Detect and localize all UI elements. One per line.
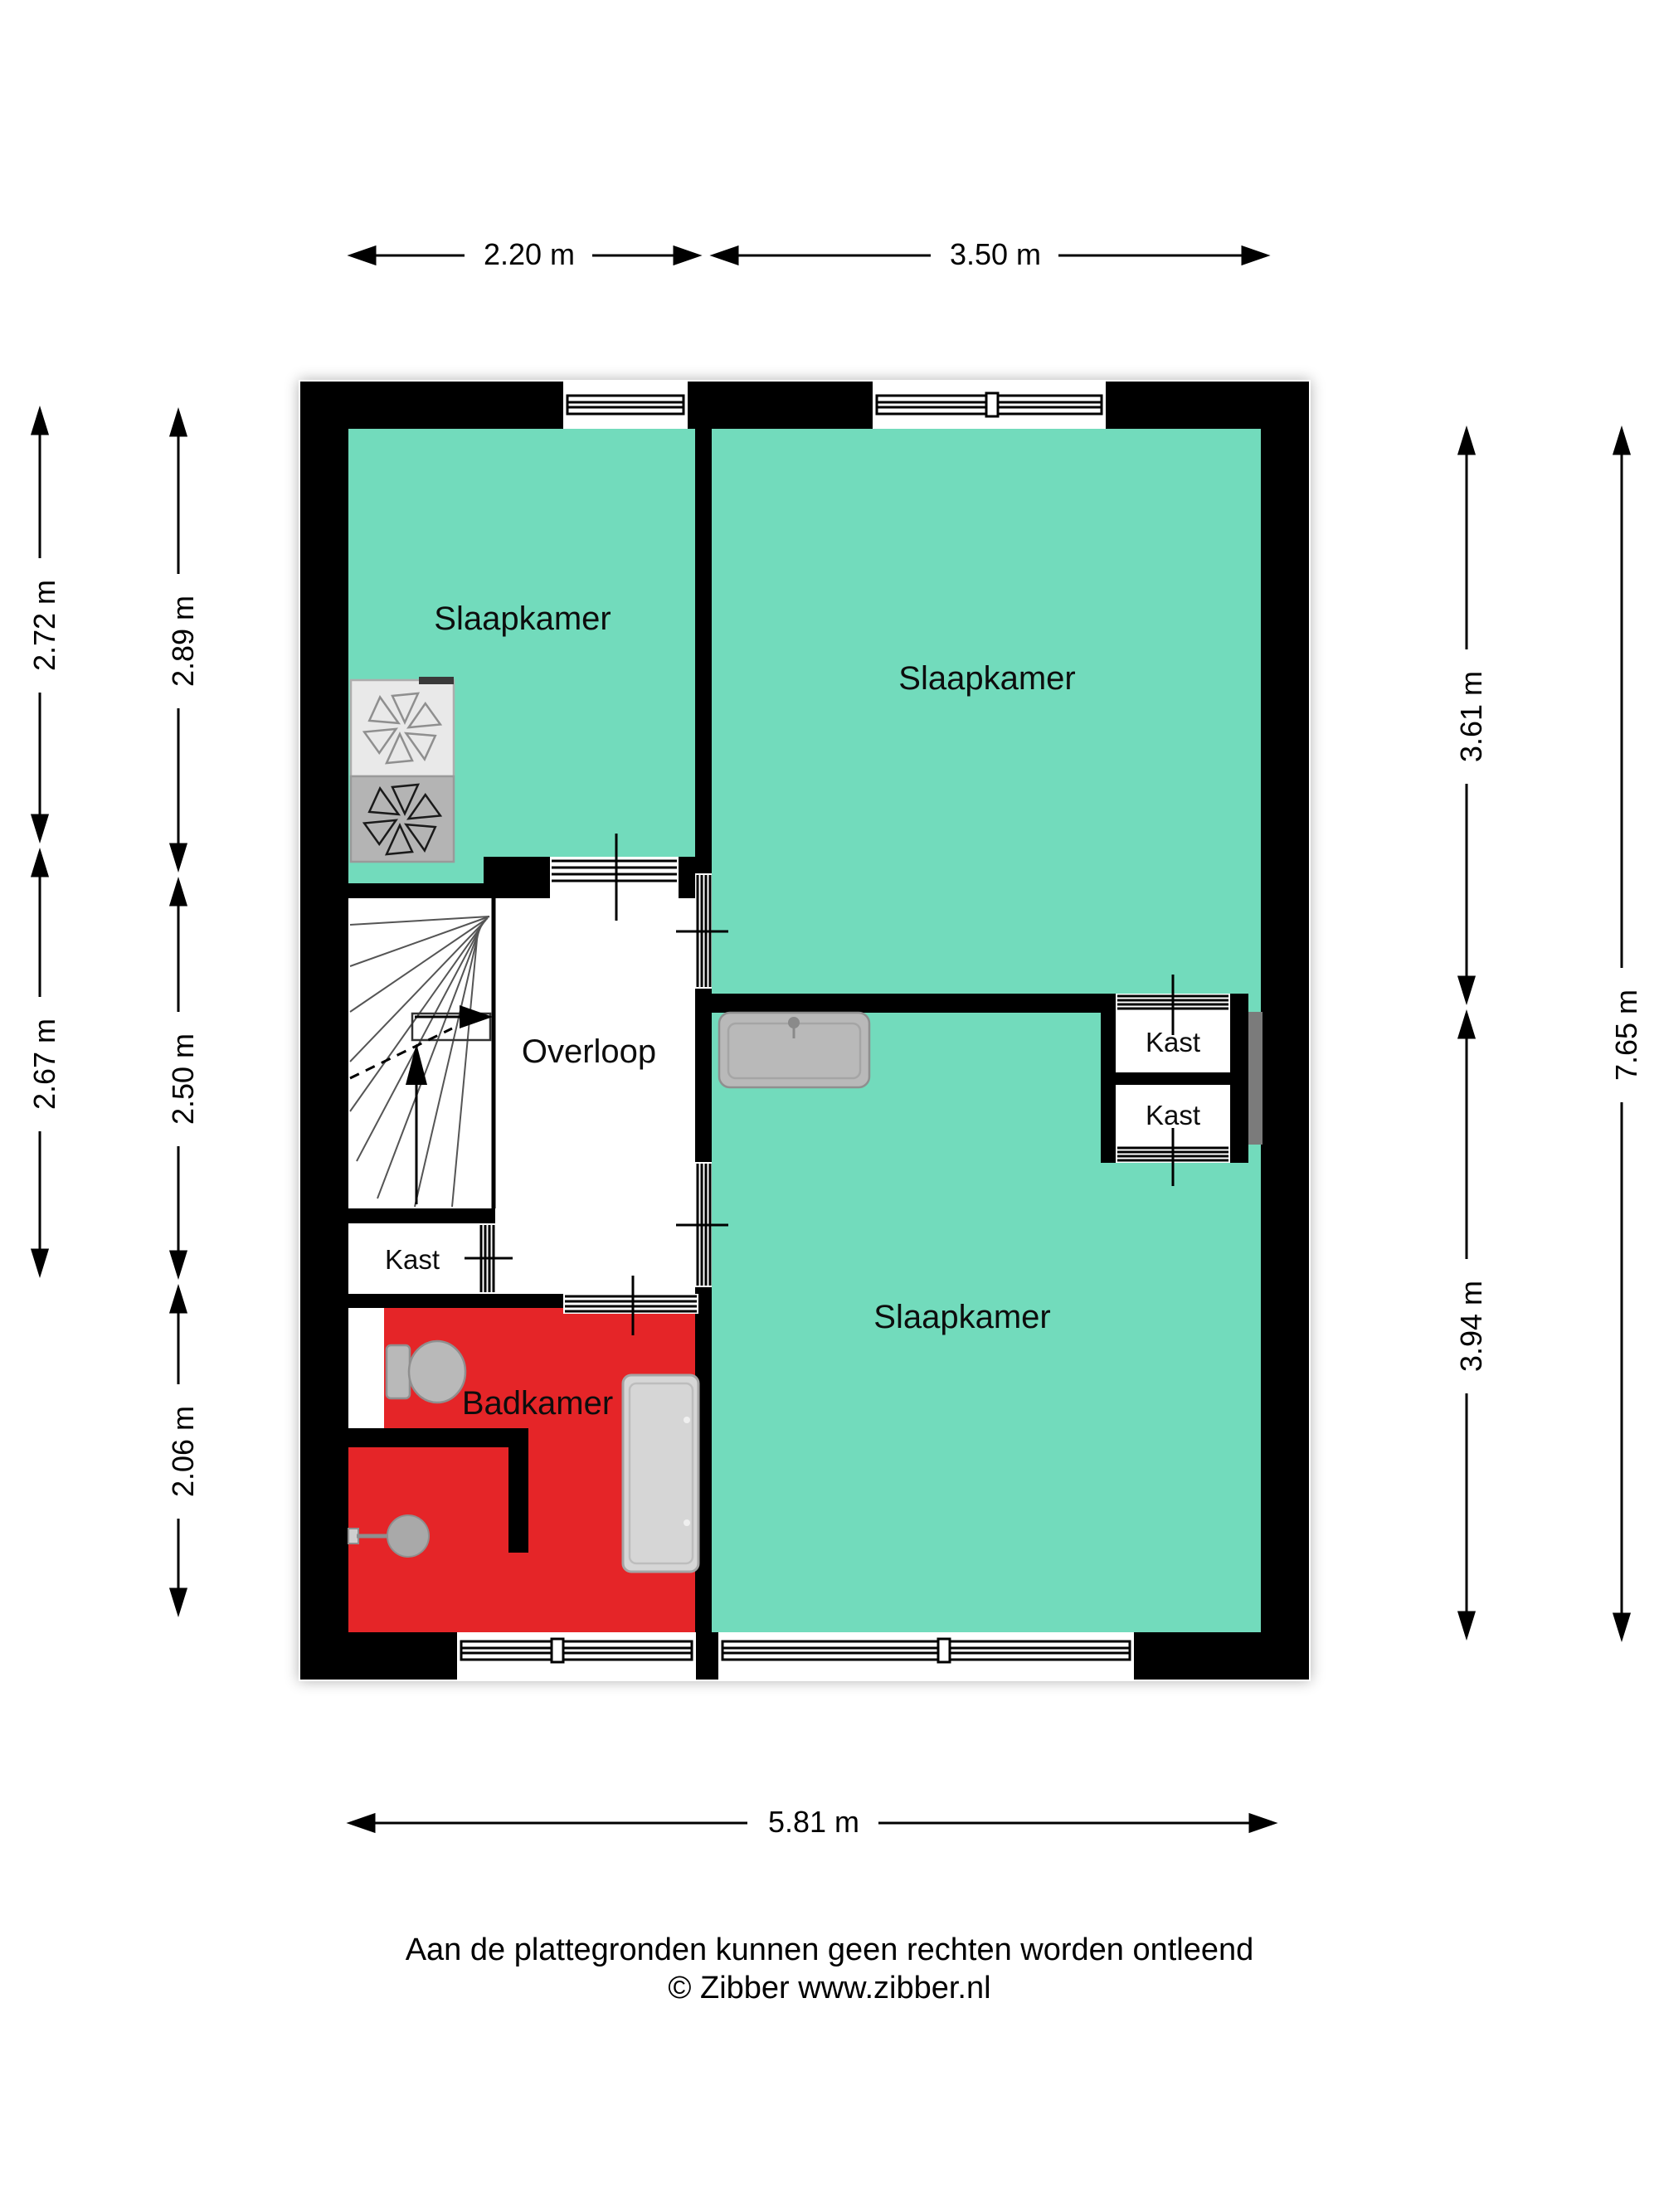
dim-right-inner-bottom: 3.94 m: [1454, 1259, 1489, 1393]
label-landing: Overloop: [485, 1033, 693, 1071]
dim-top-left: 2.20 m: [466, 237, 592, 272]
dim-left-outer-bottom: 2.67 m: [27, 997, 62, 1131]
footer-disclaimer: Aan de plattegronden kunnen geen rechten…: [0, 1932, 1659, 1968]
dim-left-inner-middle: 2.50 m: [166, 1012, 201, 1146]
appliance-top-icon: [351, 677, 454, 776]
label-bedroom-top-right: Slaapkamer: [863, 660, 1112, 698]
shower-icon: [348, 1515, 429, 1557]
staircase-icon: [350, 898, 494, 1208]
label-bathroom: Badkamer: [434, 1385, 641, 1422]
label-bedroom-top-left: Slaapkamer: [398, 600, 647, 638]
label-closet-top-right: Kast: [1123, 1027, 1223, 1058]
dim-left-inner-top: 2.89 m: [166, 574, 201, 708]
dim-right-outer: 7.65 m: [1609, 968, 1644, 1102]
sink-icon: [719, 1013, 869, 1087]
label-bedroom-bottom-right: Slaapkamer: [838, 1299, 1087, 1336]
dim-right-inner-top: 3.61 m: [1454, 649, 1489, 784]
label-closet-left: Kast: [362, 1244, 462, 1276]
dim-top-right: 3.50 m: [932, 237, 1058, 272]
dim-left-outer-top: 2.72 m: [27, 558, 62, 693]
dim-bottom: 5.81 m: [749, 1805, 878, 1840]
floorplan-page: Slaapkamer Slaapkamer Slaapkamer Overloo…: [0, 0, 1659, 2212]
footer-copyright: © Zibber www.zibber.nl: [0, 1971, 1659, 2006]
dim-left-inner-bottom: 2.06 m: [166, 1384, 201, 1519]
appliance-bottom-icon: [351, 776, 454, 862]
floorplan-drawing: [0, 0, 1659, 2212]
label-closet-bottom-right: Kast: [1123, 1100, 1223, 1131]
